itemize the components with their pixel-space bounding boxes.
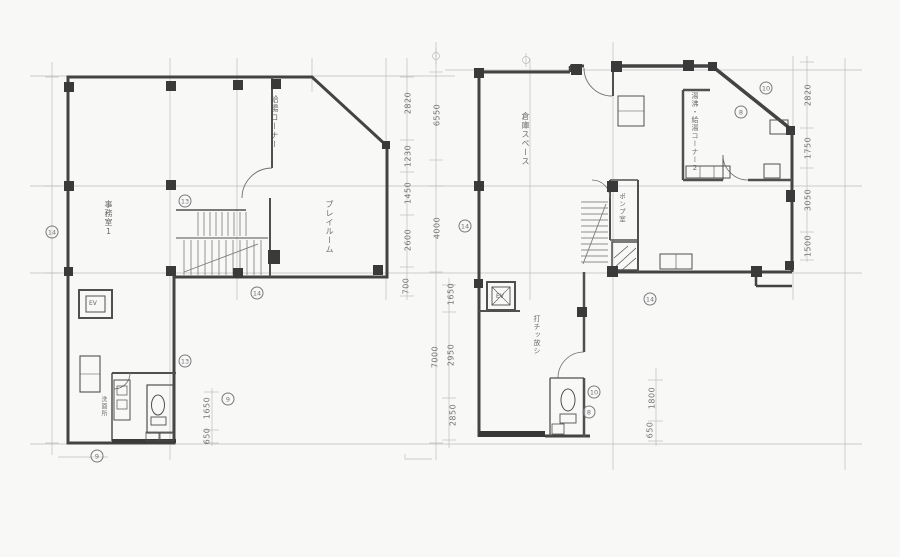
dim-right-bottom-2: 650 bbox=[646, 422, 655, 439]
dim-left-bottom-1: 1650 bbox=[203, 397, 212, 419]
left-plan-stair-treads bbox=[184, 212, 261, 275]
room-label-pump: ポンプ室 bbox=[618, 193, 625, 235]
dim-mid-inner-3: 1450 bbox=[404, 182, 413, 204]
keynote-marker: 8 bbox=[583, 406, 596, 419]
keynote-marker: 10 bbox=[588, 386, 601, 399]
left-plan-outline bbox=[68, 77, 387, 443]
room-label-storage: 倉庫スペース bbox=[521, 112, 529, 184]
dim-mid-inner-2: 1230 bbox=[404, 145, 413, 167]
keynote-marker: 9 bbox=[222, 393, 235, 406]
dim-mid-outer-3: 7000 bbox=[431, 346, 440, 368]
keynote-marker: 9 bbox=[91, 450, 104, 463]
keynote-marker: 14 bbox=[46, 226, 59, 239]
keynote-marker: 10 bbox=[760, 82, 773, 95]
elevator-label-right: EV bbox=[496, 293, 504, 300]
right-plan-columns bbox=[474, 60, 795, 317]
room-label-office: 事務室1 bbox=[104, 200, 112, 255]
left-plan-fixtures bbox=[79, 290, 173, 441]
dim-mid-lower-3: 2850 bbox=[449, 404, 458, 426]
dim-mid-lower-1: 1650 bbox=[447, 283, 456, 305]
dim-right-edge-3: 3050 bbox=[804, 189, 813, 211]
keynote-marker: 8 bbox=[735, 106, 748, 119]
left-plan-columns bbox=[64, 79, 390, 278]
right-plan-stair-treads bbox=[581, 202, 608, 264]
dim-mid-inner-1: 2820 bbox=[404, 92, 413, 114]
room-label-hotwater: 湯沸・給湯コーナー2 bbox=[691, 92, 698, 182]
keynote-marker: 14 bbox=[251, 287, 264, 300]
keynote-marker: 14 bbox=[459, 220, 472, 233]
floor-plan-sheet: 給湯コーナー 事務室1 プレイルーム 洗面所 EV 倉庫スペース 湯沸・給湯コー… bbox=[0, 0, 900, 557]
room-label-playroom: プレイルーム bbox=[325, 200, 333, 262]
elevator-label-left: EV bbox=[89, 300, 97, 307]
dim-right-edge-1: 2820 bbox=[804, 84, 813, 106]
finish-note-label: 打チッ放シ bbox=[533, 315, 540, 361]
keynote-marker: 13 bbox=[179, 195, 192, 208]
dim-mid-outer-1: 6550 bbox=[433, 104, 442, 126]
room-label-washroom: 洗面所 bbox=[100, 396, 106, 430]
room-label-corner: 給湯コーナー bbox=[270, 95, 278, 180]
left-plan-interior-walls bbox=[112, 77, 272, 441]
dim-mid-inner-5: 700 bbox=[402, 278, 411, 295]
dim-left-bottom-2: 650 bbox=[203, 428, 212, 445]
dim-mid-inner-4: 2600 bbox=[404, 229, 413, 251]
dim-right-edge-4: 1500 bbox=[804, 235, 813, 257]
dim-mid-outer-2: 4000 bbox=[433, 217, 442, 239]
keynote-marker: 13 bbox=[179, 355, 192, 368]
dim-right-edge-2: 1750 bbox=[804, 137, 813, 159]
dim-mid-lower-2: 2950 bbox=[447, 344, 456, 366]
keynote-marker: 14 bbox=[644, 293, 657, 306]
dim-right-bottom-1: 1800 bbox=[648, 387, 657, 409]
right-plan-fixtures bbox=[487, 96, 788, 434]
